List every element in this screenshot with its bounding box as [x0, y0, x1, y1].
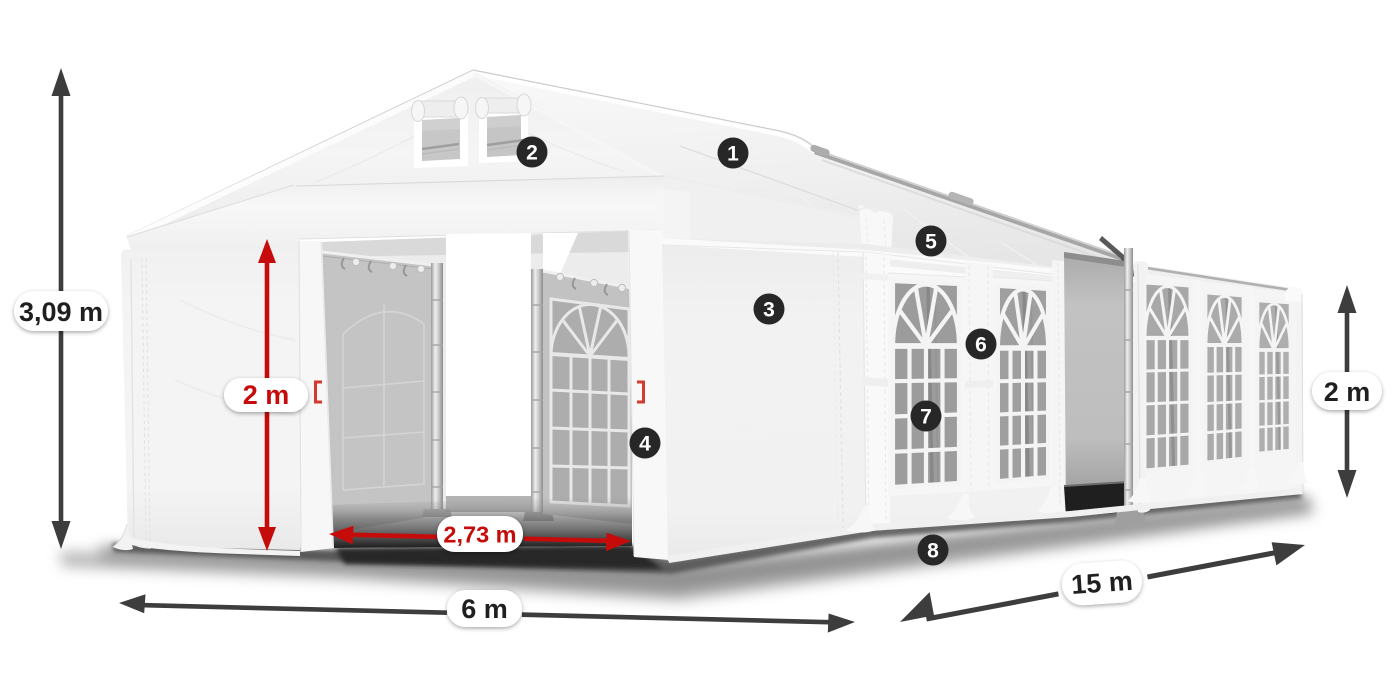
- svg-text:3,09 m: 3,09 m: [19, 297, 103, 327]
- svg-text:2 m: 2 m: [1324, 377, 1371, 407]
- svg-text:2: 2: [526, 142, 538, 165]
- svg-text:6 m: 6 m: [461, 594, 508, 624]
- svg-text:6: 6: [975, 334, 987, 357]
- svg-text:3: 3: [763, 299, 775, 322]
- svg-text:1: 1: [727, 143, 739, 166]
- svg-text:15 m: 15 m: [1070, 566, 1133, 600]
- svg-text:2,73 m: 2,73 m: [443, 522, 516, 548]
- svg-text:2 m: 2 m: [243, 380, 290, 410]
- svg-text:8: 8: [927, 540, 939, 563]
- svg-text:4: 4: [639, 433, 651, 456]
- svg-text:5: 5: [925, 231, 937, 254]
- svg-text:7: 7: [920, 406, 932, 429]
